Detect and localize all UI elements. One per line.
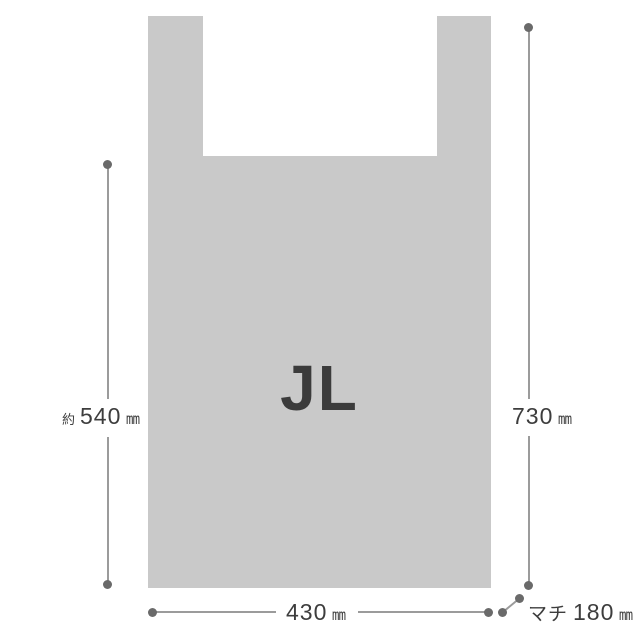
dimension-label-height-partial: 約 540 mm (56, 399, 148, 437)
dimension-value: 430 (286, 599, 327, 625)
dimension-label-height-total: 730 mm (506, 399, 580, 436)
dimension-label-gusset: マチ 180 mm (526, 596, 637, 631)
dimension-unit: mm (332, 602, 345, 628)
dimension-dot (515, 594, 524, 603)
dimension-label-width: 430 mm (276, 596, 358, 631)
dimension-unit: mm (558, 406, 571, 432)
dimension-dot (484, 608, 493, 617)
bag-handle-cutout (203, 16, 437, 156)
dimension-value: 180 (573, 599, 614, 625)
dimension-dot (103, 580, 112, 589)
dimension-dot (103, 160, 112, 169)
dimension-dot (148, 608, 157, 617)
dimension-line-left (107, 164, 109, 584)
bag-dimension-diagram: JL 約 540 mm 730 mm 430 mm マチ 180 mm (0, 0, 640, 640)
bag-size-label: JL (148, 356, 491, 420)
dimension-dot (498, 608, 507, 617)
dimension-unit: mm (619, 602, 632, 628)
dimension-unit: mm (126, 406, 139, 432)
dimension-dot (524, 581, 533, 590)
dimension-line-right (528, 27, 530, 585)
dimension-dot (524, 23, 533, 32)
approx-prefix: 約 (62, 407, 75, 433)
gusset-prefix: マチ (528, 602, 568, 628)
dimension-value: 540 (80, 403, 121, 429)
dimension-value: 730 (512, 403, 553, 429)
